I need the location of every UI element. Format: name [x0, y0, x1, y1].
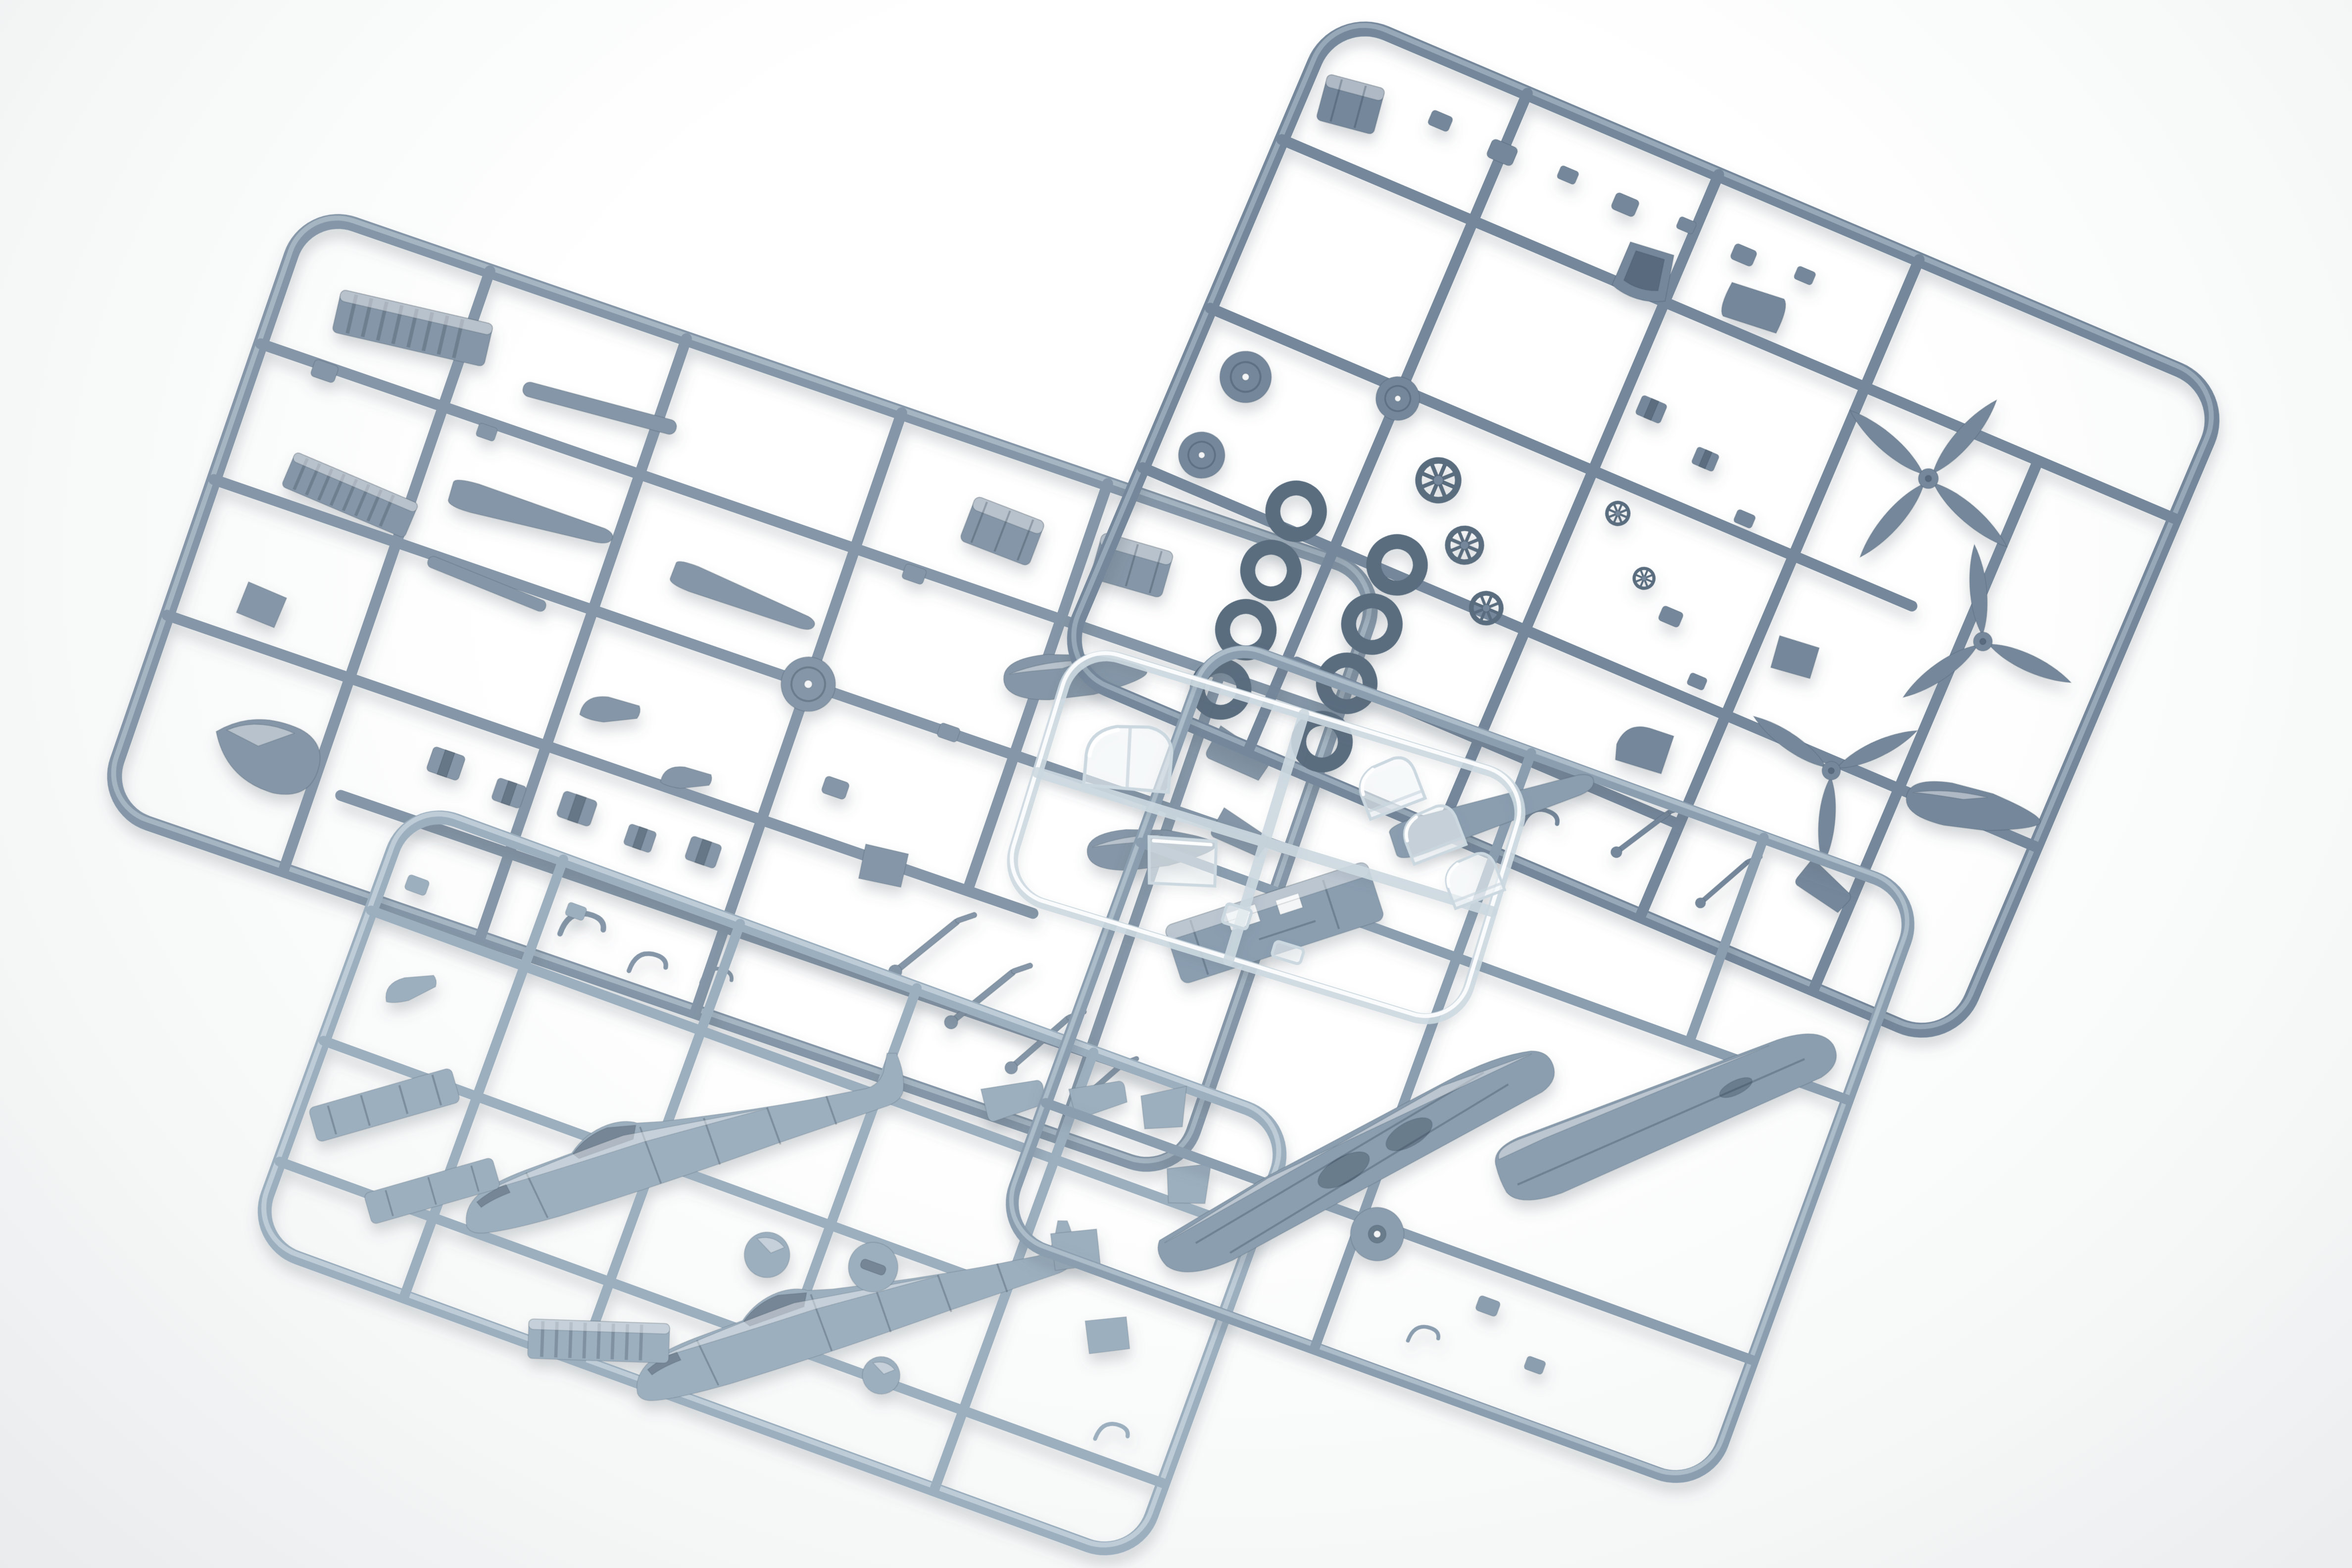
trim-wheel	[1604, 499, 1632, 528]
armor-plate	[1767, 632, 1822, 683]
spinner-dome	[738, 1225, 796, 1284]
landing-gear-leg	[886, 903, 979, 983]
oil-cooler-scoop	[579, 692, 641, 729]
antenna-mast	[629, 948, 669, 982]
small-fitting	[936, 722, 961, 743]
small-fitting	[1658, 605, 1684, 628]
rear-glazing	[1143, 833, 1220, 891]
cockpit-sidewall	[308, 1068, 460, 1143]
control-wheel	[1442, 523, 1486, 567]
leading-edge-slat	[521, 381, 678, 436]
canopy-hood	[1353, 753, 1425, 819]
spinner-dome-small	[857, 1351, 905, 1399]
horizontal-stabilizer	[446, 477, 617, 552]
headrest-armor	[1611, 717, 1677, 778]
drop-tank	[1903, 775, 2045, 843]
bulkhead-part	[426, 746, 466, 781]
trim-wheel	[1631, 565, 1657, 591]
wheel-well-insert	[854, 840, 912, 892]
wheel-well-insert	[233, 578, 290, 632]
ribbed-cooling-flap	[332, 290, 493, 367]
windscreen	[1083, 722, 1174, 792]
sprues-photo	[0, 0, 2352, 1568]
small-fitting	[1427, 109, 1454, 133]
small-fitting	[404, 874, 430, 896]
small-fitting	[1729, 243, 1758, 267]
small-bracket	[1523, 1355, 1546, 1375]
injection-hub	[774, 649, 843, 719]
wheel-hub-disc	[1212, 343, 1279, 410]
bulkhead-part	[556, 790, 598, 827]
tail-wheel-fork	[1095, 1419, 1130, 1449]
radiator-housing	[959, 495, 1045, 566]
three-blade-propeller	[1886, 537, 2076, 705]
small-fitting	[1793, 265, 1816, 286]
wheel-hub-disc	[1172, 425, 1232, 486]
control-wheel	[1413, 454, 1465, 506]
small-fitting	[1686, 672, 1708, 691]
oil-cooler-intake	[383, 973, 439, 1005]
small-bracket	[1475, 1295, 1501, 1317]
engine-fitting	[1635, 394, 1667, 424]
horizontal-stabilizer	[668, 559, 819, 638]
small-fitting	[310, 358, 339, 383]
cockpit-floor-part	[1316, 74, 1385, 135]
bulkhead-part	[623, 823, 657, 853]
photo-page: { "scene": { "type": "photograph", "subj…	[0, 0, 2352, 1568]
small-fitting	[1556, 165, 1579, 185]
engine-fitting	[1691, 446, 1720, 472]
small-fitting	[821, 775, 850, 800]
gear-indicator	[1408, 1322, 1441, 1350]
clear-canopy-sprue	[1000, 642, 1537, 1031]
small-fitting	[1610, 192, 1640, 218]
small-fitting	[1485, 138, 1519, 167]
bulkhead-part	[684, 835, 722, 869]
wing-root-fillet	[1085, 1317, 1129, 1354]
ribbed-radiator-flap	[528, 1319, 670, 1364]
